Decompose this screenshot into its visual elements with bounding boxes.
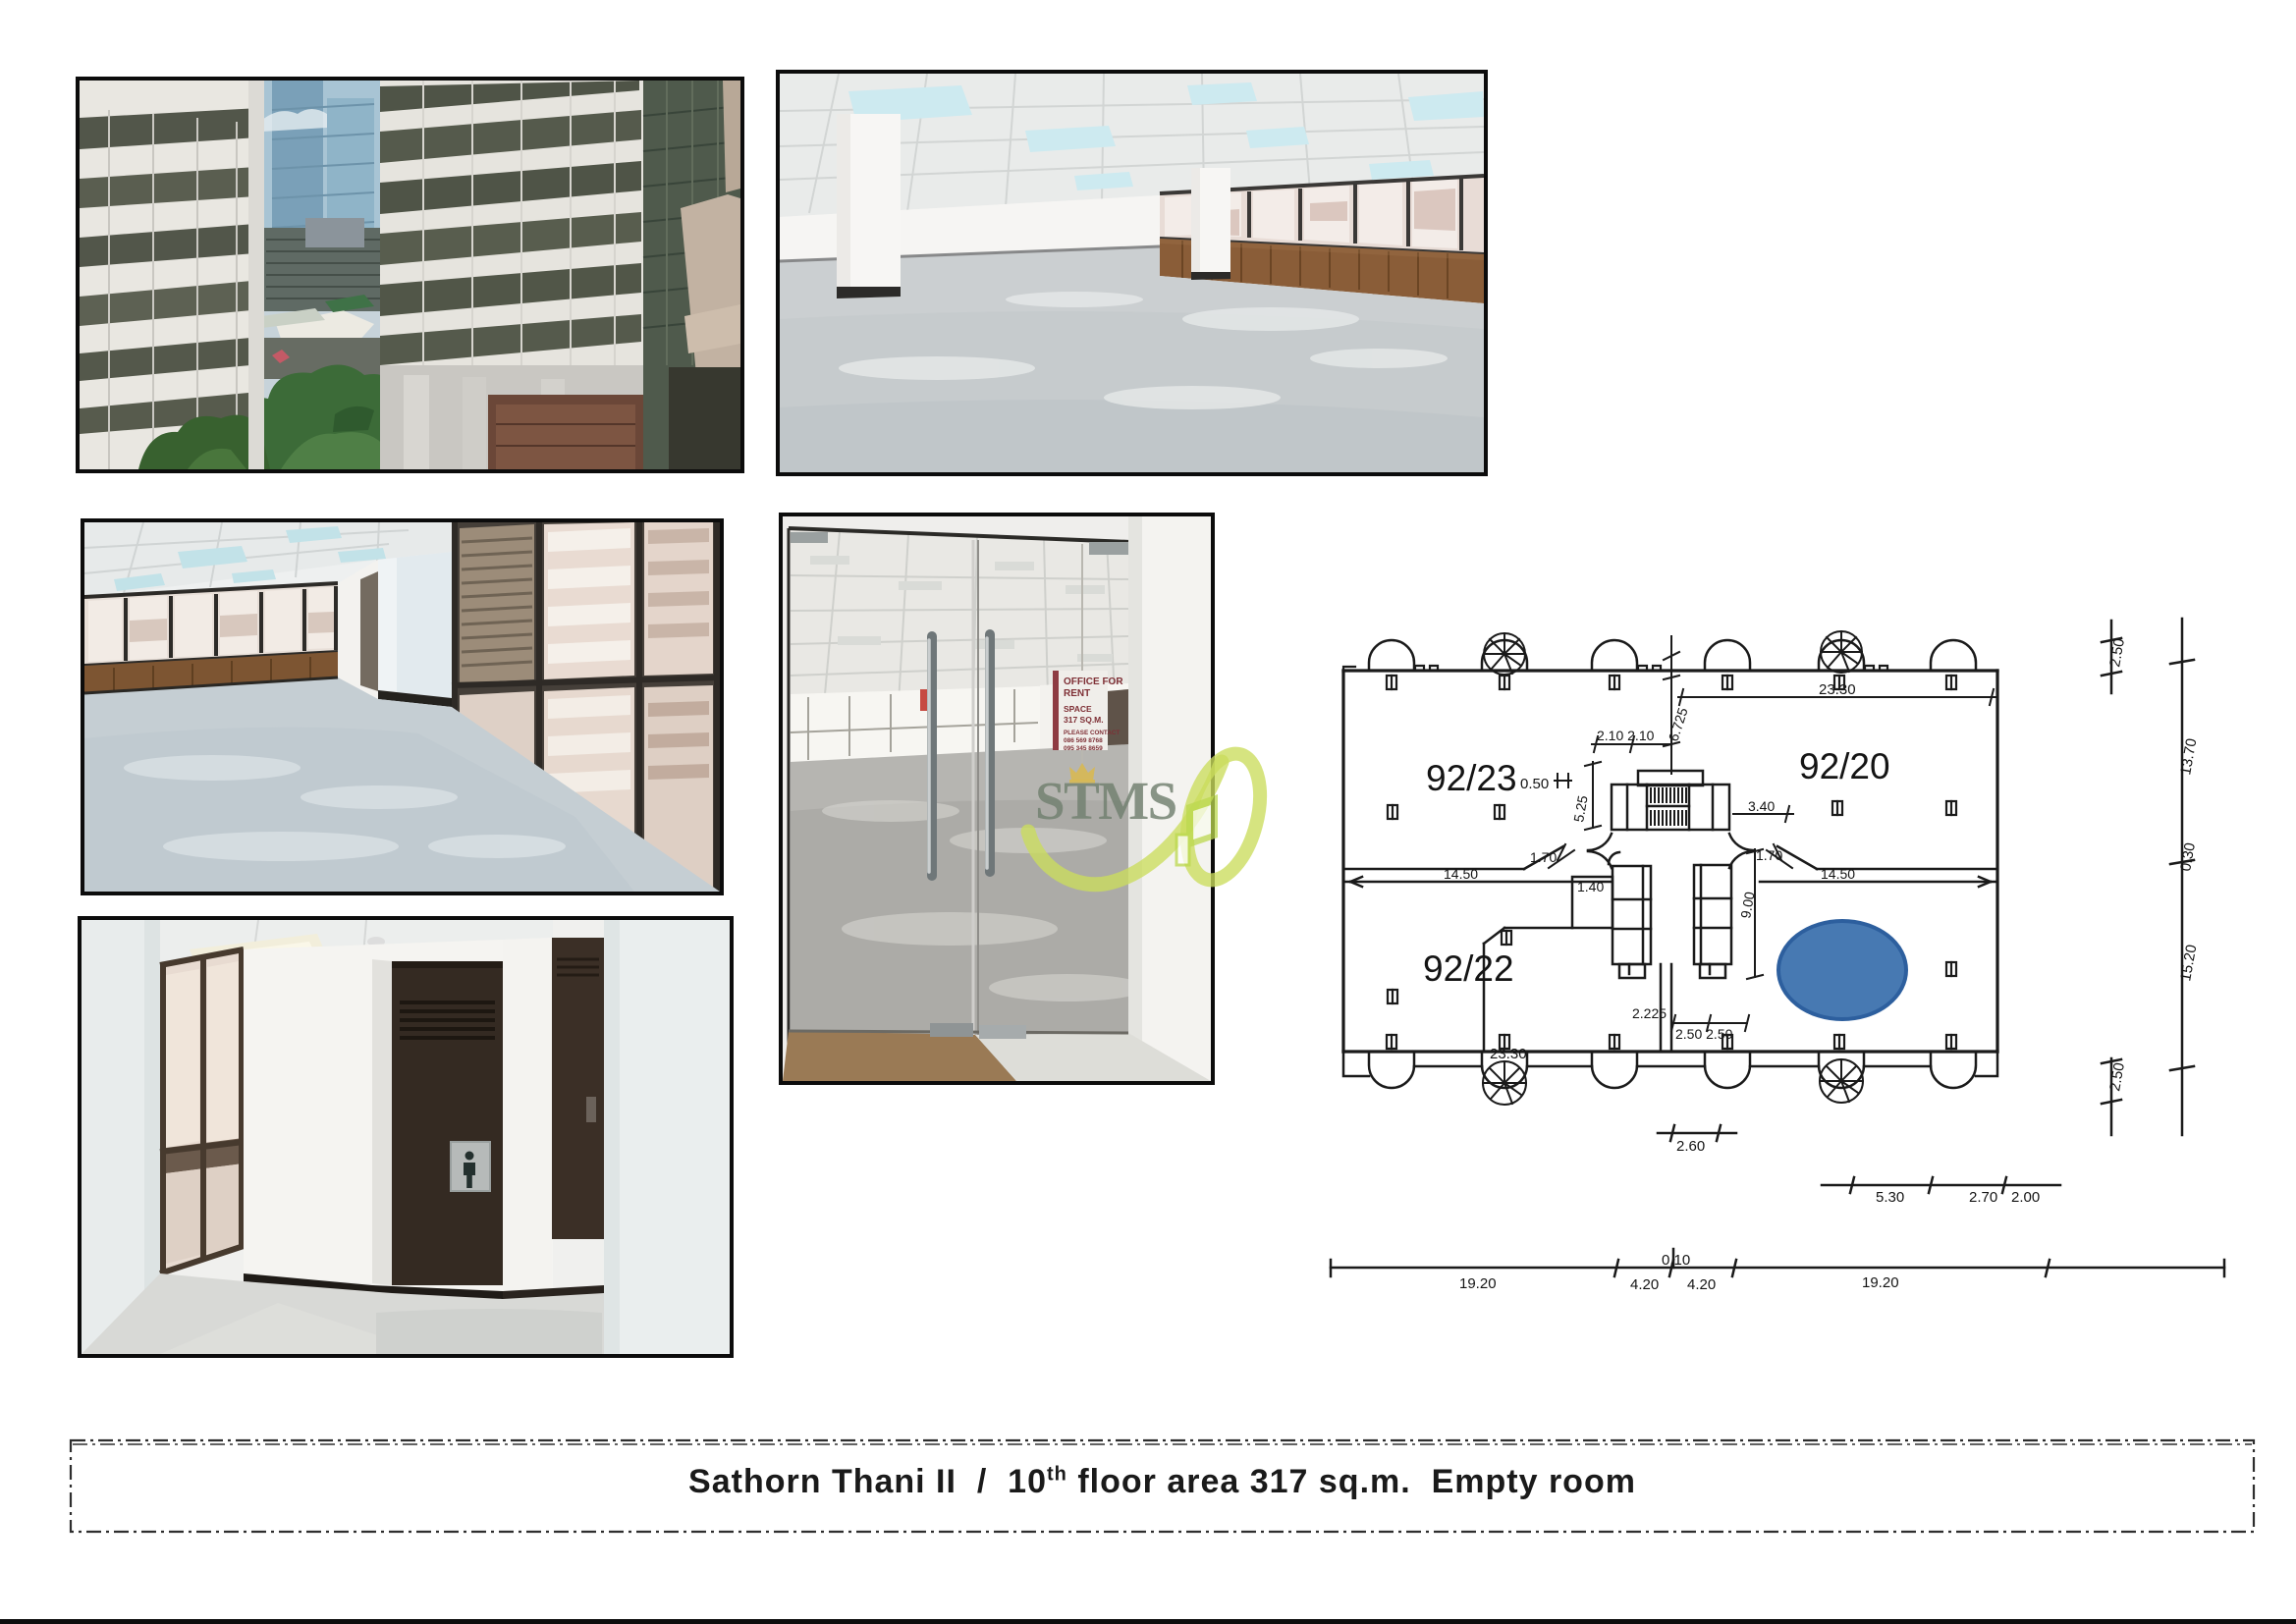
- svg-text:STMS: STMS: [1035, 771, 1176, 831]
